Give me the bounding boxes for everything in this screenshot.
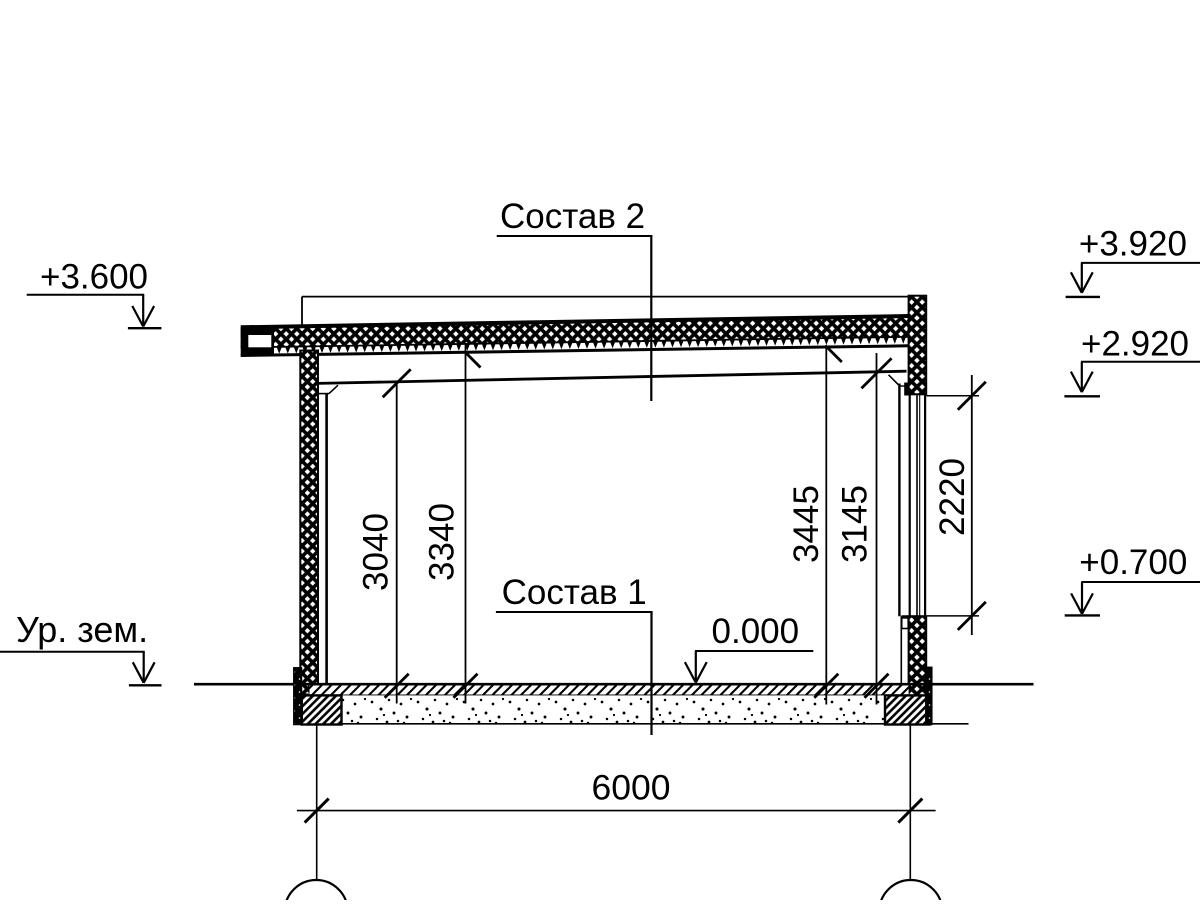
svg-text:2220: 2220 xyxy=(933,458,972,536)
svg-text:+0.700: +0.700 xyxy=(1079,543,1187,582)
svg-text:+3.600: +3.600 xyxy=(40,258,148,297)
svg-text:Ур. зем.: Ур. зем. xyxy=(16,609,148,650)
svg-text:6000: 6000 xyxy=(592,768,671,808)
svg-text:+2.920: +2.920 xyxy=(1081,325,1189,364)
svg-text:3145: 3145 xyxy=(836,485,875,563)
svg-text:0.000: 0.000 xyxy=(712,612,800,651)
svg-text:Состав 2: Состав 2 xyxy=(500,197,645,236)
svg-text:3445: 3445 xyxy=(787,485,826,563)
svg-text:+3.920: +3.920 xyxy=(1079,225,1187,264)
svg-text:3340: 3340 xyxy=(423,503,462,581)
svg-text:3040: 3040 xyxy=(357,513,396,591)
svg-text:Состав 1: Состав 1 xyxy=(502,573,647,612)
